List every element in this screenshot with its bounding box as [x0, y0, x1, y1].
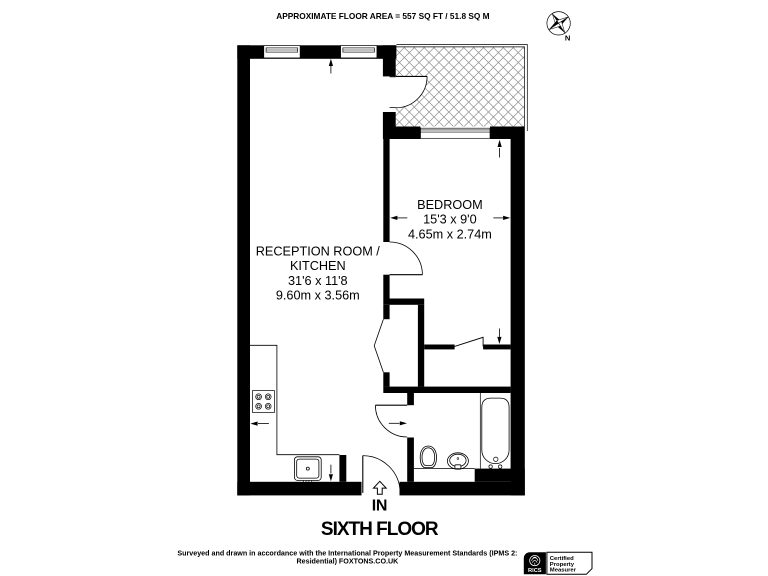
svg-text:KITCHEN: KITCHEN	[290, 259, 346, 273]
svg-text:N: N	[565, 34, 570, 43]
svg-text:15'3 x 9'0: 15'3 x 9'0	[423, 213, 477, 227]
svg-text:Measurer: Measurer	[550, 568, 577, 574]
svg-text:9.60m x 3.56m: 9.60m x 3.56m	[276, 288, 360, 302]
svg-text:BEDROOM: BEDROOM	[417, 198, 483, 212]
svg-text:31'6 x 11'8: 31'6 x 11'8	[288, 274, 348, 288]
svg-text:RICS: RICS	[528, 568, 542, 574]
svg-text:4.65m x 2.74m: 4.65m x 2.74m	[408, 228, 492, 242]
svg-text:IN: IN	[372, 497, 387, 514]
svg-text:APPROXIMATE FLOOR AREA = 557 S: APPROXIMATE FLOOR AREA = 557 SQ FT / 51.…	[276, 11, 489, 21]
svg-text:Residential) FOXTONS.CO.UK: Residential) FOXTONS.CO.UK	[296, 557, 399, 565]
svg-text:SIXTH FLOOR: SIXTH FLOOR	[321, 519, 439, 540]
svg-text:RECEPTION ROOM /: RECEPTION ROOM /	[256, 245, 381, 259]
svg-text:Surveyed and drawn in accordan: Surveyed and drawn in accordance with th…	[177, 550, 517, 558]
